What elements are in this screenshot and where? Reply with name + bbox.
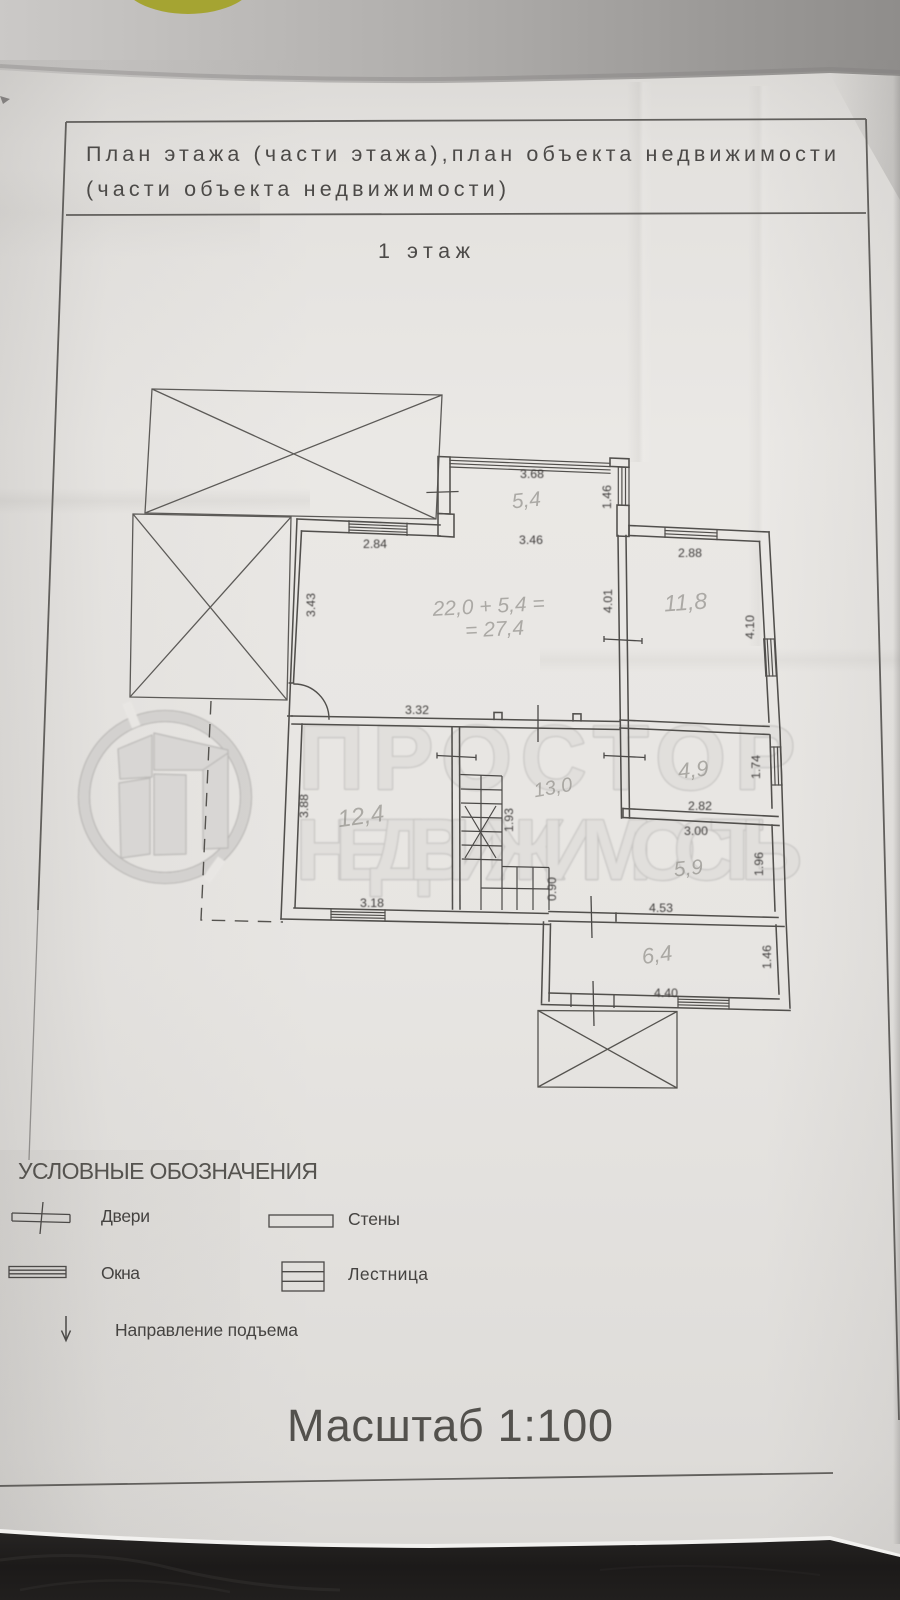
svg-text:3.00: 3.00 bbox=[684, 824, 708, 838]
svg-text:= 27,4: = 27,4 bbox=[465, 616, 525, 642]
svg-text:4.10: 4.10 bbox=[743, 615, 757, 639]
svg-text:1.46: 1.46 bbox=[760, 945, 774, 969]
svg-text:2.84: 2.84 bbox=[363, 537, 387, 551]
svg-text:1.96: 1.96 bbox=[752, 852, 766, 876]
svg-text:1.74: 1.74 bbox=[749, 755, 763, 779]
svg-text:0.90: 0.90 bbox=[545, 877, 559, 901]
svg-text:3.68: 3.68 bbox=[520, 467, 544, 481]
svg-text:Двери: Двери bbox=[101, 1206, 150, 1226]
svg-text:4.01: 4.01 bbox=[601, 589, 615, 613]
svg-text:6,4: 6,4 bbox=[640, 940, 674, 969]
svg-text:Масштаб 1:100: Масштаб 1:100 bbox=[287, 1400, 613, 1451]
svg-text:1.93: 1.93 bbox=[502, 808, 516, 832]
svg-text:2.82: 2.82 bbox=[688, 799, 712, 813]
svg-text:11,8: 11,8 bbox=[663, 588, 708, 617]
svg-text:Стены: Стены bbox=[348, 1209, 400, 1229]
svg-text:3.32: 3.32 bbox=[405, 703, 429, 717]
svg-text:Окна: Окна bbox=[101, 1263, 140, 1283]
svg-text:3.46: 3.46 bbox=[519, 533, 543, 547]
svg-text:(части объекта недвижимости): (части объекта недвижимости) bbox=[86, 177, 506, 201]
svg-text:5,9: 5,9 bbox=[673, 856, 705, 882]
svg-text:3.43: 3.43 bbox=[304, 593, 318, 617]
svg-text:1.46: 1.46 bbox=[600, 485, 614, 509]
svg-text:4.53: 4.53 bbox=[649, 901, 673, 915]
svg-text:3.18: 3.18 bbox=[360, 896, 384, 910]
svg-text:УСЛОВНЫЕ ОБОЗНАЧЕНИЯ: УСЛОВНЫЕ ОБОЗНАЧЕНИЯ bbox=[18, 1158, 318, 1184]
svg-text:4,9: 4,9 bbox=[677, 756, 710, 784]
svg-text:Лестница: Лестница bbox=[348, 1264, 428, 1284]
svg-text:Направление подъема: Направление подъема bbox=[115, 1320, 298, 1340]
svg-text:3.88: 3.88 bbox=[297, 794, 311, 818]
svg-text:4.40: 4.40 bbox=[654, 986, 678, 1000]
svg-text:2.88: 2.88 bbox=[678, 546, 702, 560]
svg-text:5,4: 5,4 bbox=[511, 488, 542, 514]
